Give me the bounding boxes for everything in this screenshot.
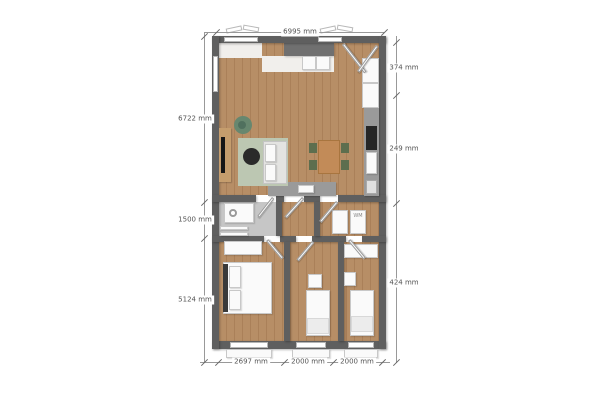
top-window xyxy=(224,37,258,42)
washing-machine-label: WM xyxy=(350,213,366,219)
dining-chair xyxy=(341,143,349,153)
dining-chair xyxy=(341,160,349,170)
dryer xyxy=(332,210,348,234)
dining-table xyxy=(318,140,340,174)
dim-tick xyxy=(381,29,388,36)
dim-label-left-upper: 6722 mm xyxy=(176,115,214,124)
dim-line-left xyxy=(204,32,205,363)
dim-label-top-width: 6995 mm xyxy=(281,28,319,37)
dining-chair xyxy=(309,143,317,153)
sofa-cushion xyxy=(265,144,276,162)
dim-label-right-lower: 424 mm xyxy=(387,279,420,288)
left-window xyxy=(213,56,218,92)
dim-line-right xyxy=(396,36,397,363)
dresser xyxy=(224,241,262,255)
bathroom-shelf xyxy=(220,232,248,236)
fridge xyxy=(366,126,377,150)
dim-label-left-lower: 5124 mm xyxy=(176,296,214,305)
storage-niche xyxy=(284,43,334,56)
nightstand xyxy=(308,274,322,288)
wardrobe xyxy=(362,83,379,108)
dim-label-bottom-right: 2000 mm xyxy=(338,358,376,367)
pillow xyxy=(229,266,241,288)
dim-label-bottom-middle: 2000 mm xyxy=(289,358,327,367)
plant-leaves xyxy=(238,121,246,129)
interior-wall xyxy=(338,195,386,202)
entry-closet xyxy=(302,56,316,70)
faucet xyxy=(229,209,237,217)
bedroom-divider-wall xyxy=(284,242,290,341)
bedroom-window xyxy=(230,342,268,348)
bathroom-shelf xyxy=(220,226,248,230)
nightstand xyxy=(344,272,356,286)
interior-wall xyxy=(212,195,256,202)
right-wall xyxy=(379,36,386,349)
dim-label-right-upper: 374 mm xyxy=(387,64,420,73)
island-sink xyxy=(298,185,314,193)
sofa-cushion xyxy=(265,164,276,181)
bedroom-window xyxy=(296,342,326,348)
tv xyxy=(221,137,225,173)
dim-label-bottom-left: 2697 mm xyxy=(232,358,270,367)
interior-wall xyxy=(276,195,284,202)
interior-wall xyxy=(304,195,320,202)
bed-headboard xyxy=(223,264,228,312)
kitchen-sink xyxy=(366,180,377,194)
bedroom-window xyxy=(348,342,374,348)
oven xyxy=(366,152,377,174)
entry-closet xyxy=(316,56,330,70)
duvet xyxy=(351,316,373,332)
bathroom-wall xyxy=(276,202,282,236)
dim-label-right-middle: 249 mm xyxy=(387,145,420,154)
dim-label-left-middle: 1500 mm xyxy=(176,216,214,225)
coffee-table xyxy=(243,148,260,165)
floorplan-canvas: WM 6995 mm 6722 mm 1500 mm 5124 mm 374 m… xyxy=(0,0,600,400)
window-sill-area xyxy=(219,43,262,58)
pillow xyxy=(229,290,241,310)
top-window xyxy=(318,37,342,42)
duvet xyxy=(307,318,329,334)
interior-wall xyxy=(362,236,386,242)
dim-tick xyxy=(393,359,400,366)
dining-chair xyxy=(309,160,317,170)
